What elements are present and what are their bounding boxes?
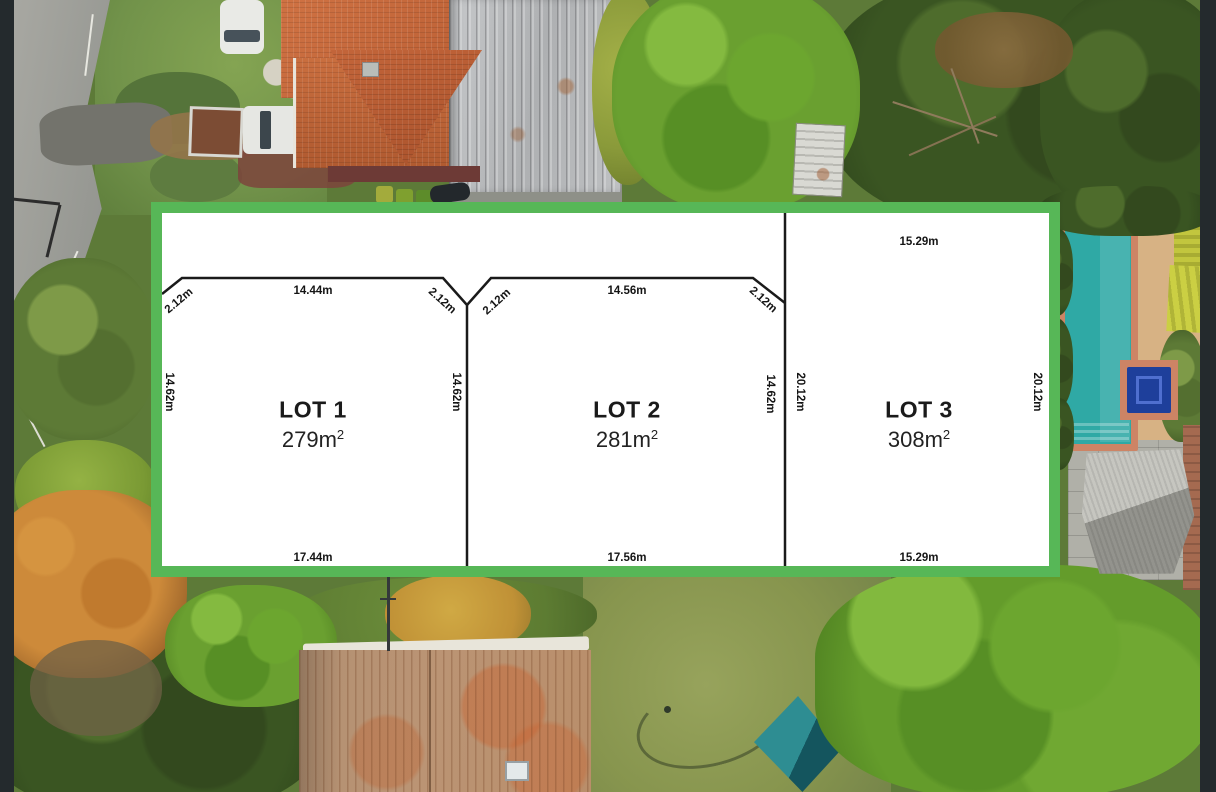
- lot1-frontage-label: 14.44m: [293, 285, 332, 297]
- olive-tree-left: [5, 258, 157, 440]
- maroon-wall: [328, 166, 480, 182]
- spa-inner-ring: [1136, 376, 1162, 404]
- dead-patch-bottom-left: [30, 640, 162, 736]
- lot3-name: LOT 3: [885, 397, 953, 424]
- sprinkler-dot: [664, 706, 671, 713]
- skylight: [505, 761, 529, 781]
- bottom-house-roof: [299, 650, 591, 792]
- ac-unit: [362, 62, 379, 77]
- white-car: [220, 0, 264, 54]
- box-trailer: [188, 106, 244, 158]
- letterbox-left: [0, 0, 14, 792]
- lot3-left-side-label: 20.12m: [794, 372, 806, 411]
- ute-windshield: [260, 111, 271, 149]
- antenna-crossbar: [380, 598, 396, 600]
- lot2-name: LOT 2: [593, 397, 661, 424]
- lot1-name: LOT 1: [279, 397, 347, 424]
- letterbox-right: [1200, 0, 1216, 792]
- subdivision-flyer: 2.12m 14.44m 2.12m 2.12m 14.56m 2.12m 15…: [0, 0, 1216, 792]
- lot1-left-side-label: 14.62m: [163, 372, 175, 411]
- white-shed: [792, 123, 846, 198]
- bottom-house-hip-line: [429, 650, 431, 792]
- lot3-frontage-label: 15.29m: [899, 236, 938, 248]
- tv-antenna: [387, 577, 390, 651]
- lot2-area: 281m2: [596, 427, 658, 453]
- lot2-right-side-label: 14.62m: [764, 374, 776, 413]
- lot3-right-side-label: 20.12m: [1031, 372, 1043, 411]
- trees-pool-top: [1040, 186, 1212, 236]
- bottom-house-left-shade: [299, 650, 341, 792]
- canopy-bottom-right: [815, 565, 1215, 792]
- plan-white-area: 2.12m 14.44m 2.12m 2.12m 14.56m 2.12m 15…: [162, 213, 1049, 566]
- car-windshield: [224, 30, 260, 42]
- lot1-rear-label: 17.44m: [293, 552, 332, 564]
- pool-steps: [1067, 420, 1129, 440]
- subdivision-plan-panel: 2.12m 14.44m 2.12m 2.12m 14.56m 2.12m 15…: [151, 202, 1060, 577]
- lot2-rear-label: 17.56m: [607, 552, 646, 564]
- boundary-lines: [162, 213, 1049, 566]
- lot1-area: 279m2: [282, 427, 344, 453]
- green-bin: [376, 186, 393, 203]
- lot2-frontage-label: 14.56m: [607, 285, 646, 297]
- lot3-area: 308m2: [888, 427, 950, 453]
- lot1-right-side-label: 14.62m: [450, 372, 462, 411]
- lot3-rear-label: 15.29m: [899, 552, 938, 564]
